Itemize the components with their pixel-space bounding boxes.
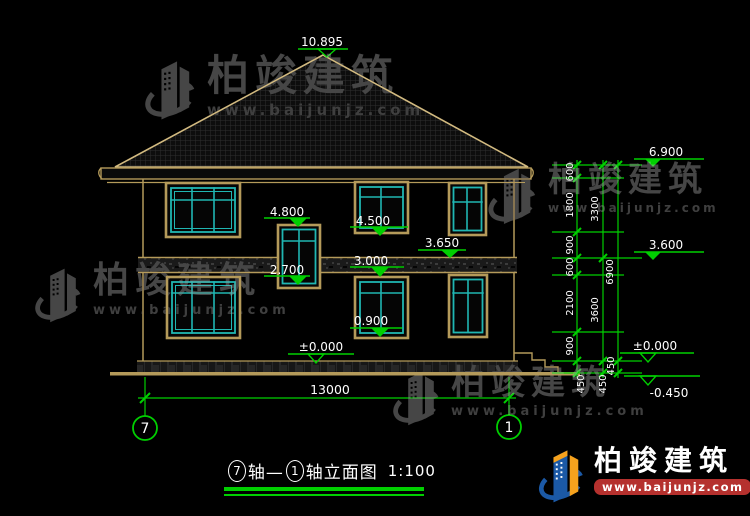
window-2f-right	[449, 183, 486, 235]
title-underline-thin	[224, 494, 424, 496]
brand-logo-url: www.baijunjz.com	[594, 479, 750, 495]
cad-elevation-drawing: 600 1800 900 600 2100 900 450 3300 3600 …	[0, 0, 750, 516]
svg-text:4.500: 4.500	[356, 214, 390, 228]
dim-450c: 450	[606, 356, 617, 375]
level-band-top: 3.650	[418, 236, 466, 258]
title-axis-right: 1	[286, 460, 304, 482]
dim-3300: 3300	[590, 196, 601, 221]
svg-text:4.800: 4.800	[270, 205, 304, 219]
svg-text:3.000: 3.000	[354, 254, 388, 268]
dim-3600: 3600	[590, 297, 601, 322]
svg-text:0.900: 0.900	[354, 314, 388, 328]
brand-logo: 柏竣建筑 www.baijunjz.com	[538, 445, 750, 507]
level-ground-left: ±0.000	[288, 340, 354, 363]
eave-band	[99, 168, 534, 183]
svg-text:10.895: 10.895	[301, 35, 343, 49]
level-terrain: -0.450	[624, 376, 700, 400]
svg-text:3.650: 3.650	[425, 236, 459, 250]
title-scale: 1:100	[388, 462, 436, 480]
svg-text:7: 7	[141, 421, 150, 437]
drawing-title: 7 轴— 1 轴立面图 1:100	[226, 458, 436, 483]
title-text: 轴立面图	[306, 458, 378, 483]
svg-text:-0.450: -0.450	[650, 386, 689, 400]
brand-logo-icon	[538, 445, 586, 507]
svg-text:±0.000: ±0.000	[299, 340, 343, 354]
title-join: 轴—	[248, 458, 284, 483]
svg-text:3.600: 3.600	[649, 238, 683, 252]
plinth	[110, 361, 580, 376]
window-2f-left	[166, 183, 240, 237]
svg-text:6.900: 6.900	[649, 145, 683, 159]
drawing-svg: 600 1800 900 600 2100 900 450 3300 3600 …	[0, 0, 750, 516]
dim-1800: 1800	[565, 192, 576, 217]
level-ridge: 10.895	[298, 35, 348, 57]
entry-steps	[514, 353, 558, 372]
dim-13000: 13000	[310, 382, 350, 397]
roof	[115, 55, 528, 167]
bottom-dimension: 13000 7 1	[133, 377, 521, 440]
svg-text:2.700: 2.700	[270, 263, 304, 277]
dim-6900: 6900	[605, 259, 616, 284]
title-axis-left: 7	[228, 460, 246, 482]
floor-band	[138, 258, 517, 273]
dim-600b: 600	[565, 257, 576, 276]
ground-line	[110, 372, 580, 376]
svg-text:±0.000: ±0.000	[633, 339, 677, 353]
dim-900a: 900	[565, 235, 576, 254]
dim-450b: 450	[598, 374, 609, 393]
level-floor2-right: 3.600	[634, 238, 704, 260]
dim-600a: 600	[565, 162, 576, 181]
level-eave-right: 6.900	[634, 145, 704, 167]
window-1f-left	[167, 277, 240, 338]
svg-text:1: 1	[505, 420, 514, 436]
level-ground-right: ±0.000	[620, 339, 694, 362]
level-stair-top: 4.800	[264, 205, 310, 227]
dim-450a: 450	[576, 374, 587, 393]
axis-bubble-1: 1	[497, 415, 521, 439]
dim-900b: 900	[565, 336, 576, 355]
window-1f-right	[449, 275, 487, 337]
dim-2100: 2100	[565, 290, 576, 315]
brand-logo-name: 柏竣建筑	[594, 445, 750, 477]
title-underline-thick	[224, 487, 424, 491]
axis-bubble-7: 7	[133, 416, 157, 440]
